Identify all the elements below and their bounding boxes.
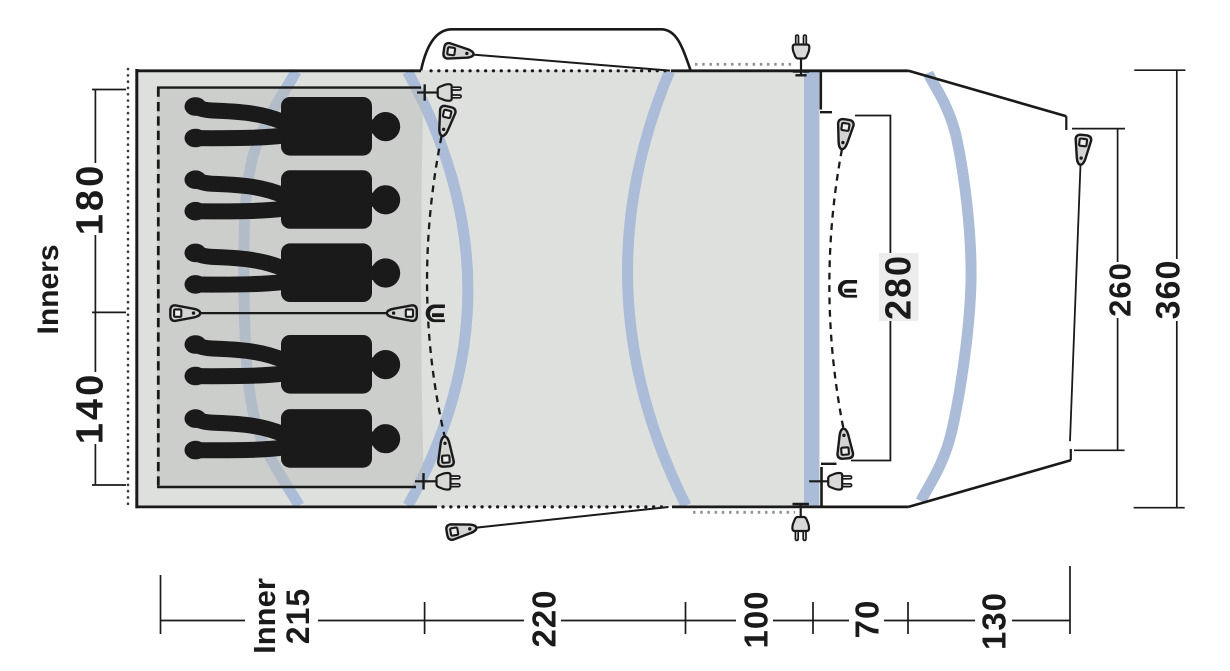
svg-text:220: 220 [526,589,563,647]
svg-text:70: 70 [849,600,886,639]
svg-text:280: 280 [878,254,919,320]
svg-text:130: 130 [976,592,1013,650]
svg-text:260: 260 [1103,262,1138,317]
svg-text:180: 180 [69,163,111,235]
svg-text:360: 360 [1150,260,1188,320]
svg-text:140: 140 [69,372,111,444]
svg-text:Inners: Inners [32,244,65,334]
svg-text:215: 215 [280,588,316,644]
svg-text:100: 100 [738,590,775,648]
svg-text:Inner: Inner [247,578,282,654]
